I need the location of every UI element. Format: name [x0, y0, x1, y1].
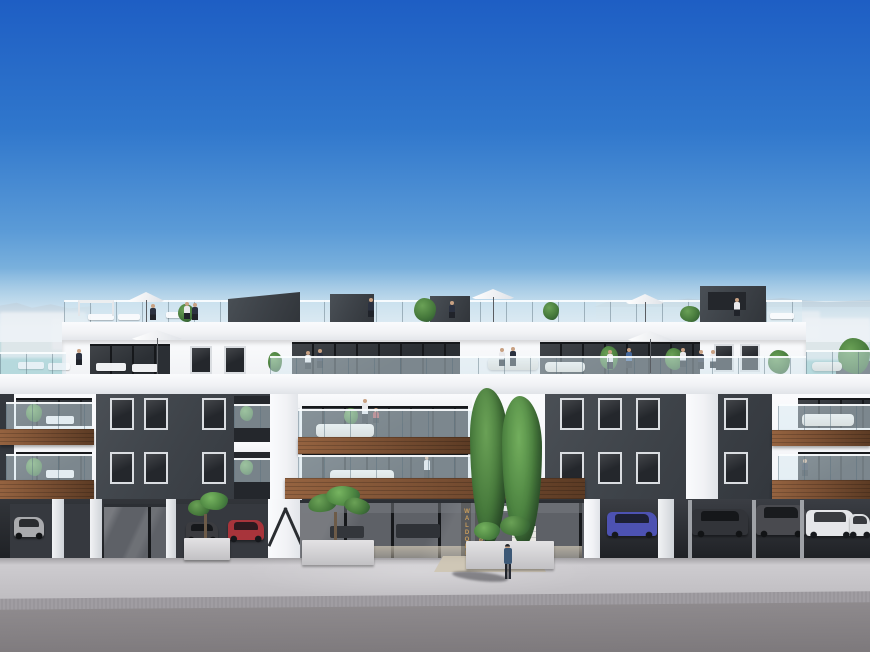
- balcony-wood-band: [0, 429, 94, 445]
- window: [724, 398, 748, 430]
- column: [52, 499, 64, 562]
- window: [202, 398, 226, 430]
- balcony-railing: [6, 454, 92, 480]
- car-white-far-right: [850, 514, 870, 536]
- column: [90, 499, 102, 562]
- column: [658, 499, 674, 561]
- rooftop-screen: [708, 292, 746, 310]
- person-figure: [368, 302, 374, 317]
- window: [144, 398, 168, 430]
- window: [636, 452, 660, 484]
- person-figure: [734, 302, 740, 316]
- umbrella: [628, 331, 672, 373]
- rooftop-plant: [543, 302, 559, 320]
- person-figure: [192, 307, 198, 320]
- person-figure: [184, 306, 190, 319]
- balcony-railing: [778, 404, 870, 430]
- planter-box: [184, 538, 230, 560]
- column: [688, 500, 692, 558]
- umbrella: [132, 330, 182, 374]
- rooftop-plant: [680, 306, 700, 322]
- palm-fronds: [200, 492, 228, 510]
- column: [752, 500, 756, 558]
- balcony-wood-band: [772, 430, 870, 446]
- rooftop-pergola: [78, 300, 114, 316]
- window: [636, 398, 660, 430]
- facade-pier: [686, 394, 718, 512]
- person-torso: [504, 548, 512, 564]
- umbrella: [472, 289, 514, 321]
- road: [0, 602, 870, 652]
- window: [110, 398, 134, 430]
- car-blue-suv: [607, 512, 657, 536]
- window: [110, 452, 134, 484]
- window: [560, 398, 584, 430]
- car-grey-suv: [756, 505, 806, 535]
- umbrella: [626, 294, 664, 324]
- car-red-left-garage: [228, 520, 264, 540]
- car-white-suv: [806, 510, 854, 536]
- person-walking: [503, 544, 513, 580]
- palm-fronds: [474, 522, 500, 540]
- window: [598, 452, 622, 484]
- terrace-lounger: [96, 363, 126, 371]
- umbrella: [128, 292, 164, 322]
- terrace-glass-railing: [806, 350, 870, 374]
- rooftop-lounger: [770, 313, 794, 319]
- column: [166, 499, 176, 562]
- balcony-railing: [6, 402, 92, 429]
- palm-fronds: [500, 516, 530, 536]
- window: [724, 452, 748, 484]
- person-legs: [505, 564, 511, 579]
- balcony-railing: [234, 458, 270, 482]
- facade-pier: [584, 499, 600, 563]
- window: [144, 452, 168, 484]
- balcony-wood-band: [298, 437, 472, 454]
- terrace-glass-railing: [0, 352, 66, 374]
- balcony-wood-band: [772, 480, 870, 499]
- column: [800, 500, 804, 558]
- floor-slab: [234, 442, 270, 452]
- rooftop-plant: [414, 298, 436, 322]
- car-white-hatchback-far-left: [14, 517, 44, 537]
- terrace-glass-railing: [270, 356, 806, 376]
- window: [598, 398, 622, 430]
- architectural-render-scene: WALDORF ASTORIA: [0, 0, 870, 652]
- planter-box: [302, 540, 374, 565]
- glass-storefront: [104, 504, 168, 562]
- balcony-railing: [298, 409, 472, 437]
- balcony-wood-band: [0, 480, 94, 499]
- balcony-railing: [778, 454, 870, 480]
- person-figure: [76, 353, 82, 365]
- window: [190, 346, 212, 374]
- lobby-furniture: [396, 524, 440, 538]
- person-figure: [449, 305, 455, 318]
- window: [202, 452, 226, 484]
- balcony-railing: [234, 404, 270, 428]
- terrace-parapet: [0, 374, 870, 396]
- car-grey-wagon: [692, 509, 748, 535]
- window: [224, 346, 246, 374]
